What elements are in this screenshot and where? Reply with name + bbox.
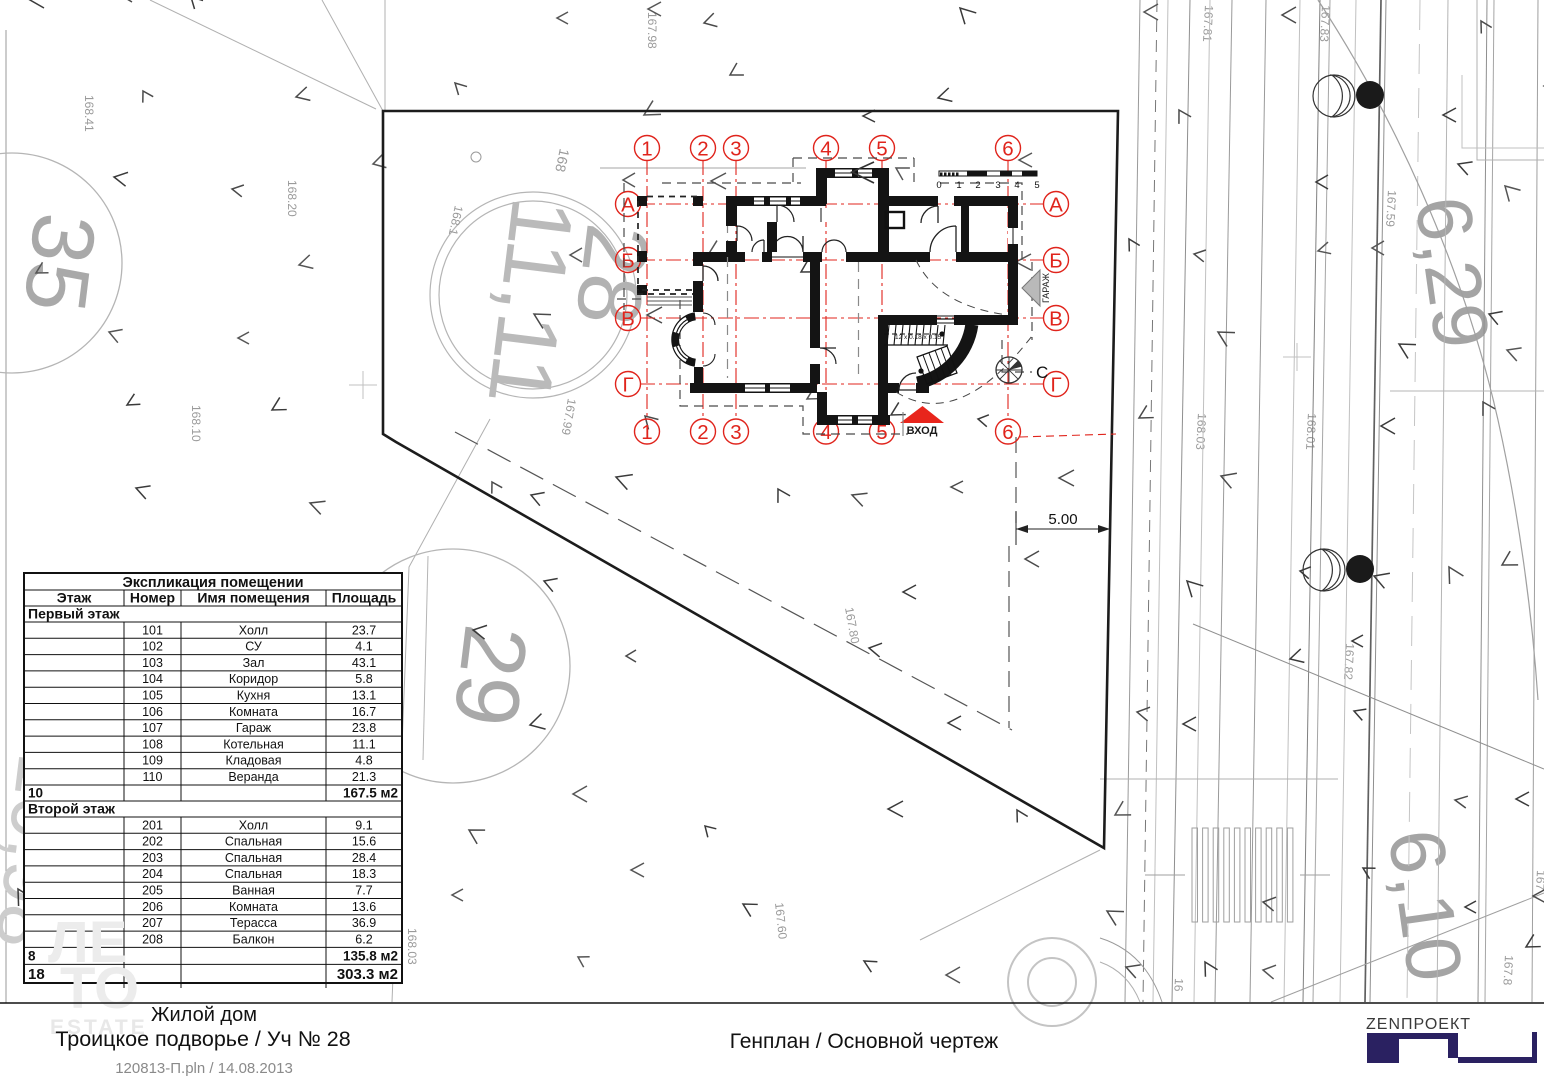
svg-text:6: 6: [1002, 421, 1013, 444]
svg-text:5: 5: [876, 137, 887, 160]
svg-text:207: 207: [142, 916, 163, 930]
svg-text:18: 18: [28, 966, 45, 983]
svg-text:36.9: 36.9: [352, 916, 376, 930]
svg-text:167.5 м2: 167.5 м2: [343, 786, 398, 801]
svg-text:Коридор: Коридор: [229, 672, 278, 686]
svg-text:108: 108: [142, 737, 163, 751]
svg-text:4.8: 4.8: [355, 754, 372, 768]
svg-text:204: 204: [142, 867, 163, 881]
svg-text:9.1: 9.1: [355, 818, 372, 832]
svg-text:Кладовая: Кладовая: [226, 754, 282, 768]
svg-text:107: 107: [142, 721, 163, 735]
svg-text:5.8: 5.8: [355, 672, 372, 686]
svg-text:Балкон: Балкон: [233, 932, 275, 946]
svg-text:Холл: Холл: [239, 818, 268, 832]
svg-text:168.20: 168.20: [285, 180, 299, 217]
svg-text:Зал: Зал: [243, 656, 265, 670]
svg-text:В: В: [621, 307, 635, 330]
svg-text:102: 102: [142, 640, 163, 654]
svg-text:ГАРАЖ: ГАРАЖ: [1041, 272, 1051, 303]
svg-text:Б: Б: [1049, 249, 1062, 272]
svg-text:135.8 м2: 135.8 м2: [343, 949, 398, 964]
svg-text:В: В: [1049, 307, 1063, 330]
svg-text:Спальная: Спальная: [225, 867, 282, 881]
svg-text:110: 110: [143, 770, 163, 784]
svg-text:2: 2: [697, 137, 708, 160]
svg-text:2: 2: [697, 421, 708, 444]
svg-text:Спальная: Спальная: [225, 851, 282, 865]
svg-text:203: 203: [142, 851, 163, 865]
svg-text:Имя помещения: Имя помещения: [197, 590, 309, 606]
svg-text:10: 10: [28, 786, 43, 801]
svg-text:35: 35: [5, 208, 115, 317]
svg-text:4: 4: [1014, 180, 1019, 191]
svg-text:21.3: 21.3: [352, 770, 376, 784]
svg-text:303.3 м2: 303.3 м2: [337, 966, 398, 983]
svg-text:43.1: 43.1: [352, 656, 376, 670]
svg-text:28.4: 28.4: [352, 851, 376, 865]
svg-text:29: 29: [434, 620, 545, 732]
svg-text:15.6: 15.6: [352, 835, 376, 849]
svg-text:16: 16: [1171, 978, 1186, 992]
svg-text:167.8: 167.8: [1500, 955, 1516, 986]
svg-text:Комната: Комната: [229, 900, 278, 914]
svg-text:168.03: 168.03: [405, 928, 419, 965]
svg-text:168.01: 168.01: [1303, 413, 1319, 451]
svg-text:Спальная: Спальная: [225, 835, 282, 849]
svg-text:105: 105: [142, 689, 163, 703]
svg-text:6: 6: [1002, 137, 1013, 160]
svg-text:7.7: 7.7: [355, 884, 372, 898]
svg-text:120813-П.pln / 14.08.2013: 120813-П.pln / 14.08.2013: [115, 1060, 293, 1077]
svg-text:168.41: 168.41: [82, 95, 96, 132]
svg-text:Холл: Холл: [239, 623, 268, 637]
svg-text:16.7: 16.7: [352, 705, 376, 719]
svg-text:Ванная: Ванная: [232, 884, 275, 898]
svg-text:5: 5: [1034, 180, 1039, 191]
svg-text:3: 3: [995, 180, 1000, 191]
svg-text:13.6: 13.6: [352, 900, 376, 914]
svg-text:ТО: ТО: [60, 956, 139, 1021]
svg-text:18.3: 18.3: [352, 867, 376, 881]
svg-text:Терасса: Терасса: [230, 916, 277, 930]
svg-text:3: 3: [730, 421, 741, 444]
svg-text:Б: Б: [621, 249, 634, 272]
svg-text:Г: Г: [622, 373, 633, 396]
svg-text:А: А: [621, 193, 635, 216]
svg-text:СУ: СУ: [245, 640, 262, 654]
svg-text:ВХОД: ВХОД: [907, 425, 938, 437]
svg-text:Второй этаж: Второй этаж: [28, 801, 116, 817]
svg-text:С: С: [1036, 363, 1048, 382]
svg-text:201: 201: [142, 818, 163, 832]
svg-text:3: 3: [730, 137, 741, 160]
svg-text:167.59: 167.59: [1383, 190, 1399, 228]
svg-text:206: 206: [142, 900, 163, 914]
svg-text:11.1: 11.1: [352, 737, 375, 751]
svg-text:208: 208: [142, 932, 163, 946]
svg-text:0: 0: [936, 180, 941, 191]
svg-text:205: 205: [142, 884, 163, 898]
svg-text:Жилой дом: Жилой дом: [151, 1004, 257, 1026]
svg-text:12 x 0.18 x 0.15: 12 x 0.18 x 0.15: [895, 334, 942, 341]
svg-text:5.00: 5.00: [1048, 511, 1077, 528]
svg-text:167.81: 167.81: [1200, 5, 1216, 43]
svg-text:Генплан / Основной чертеж: Генплан / Основной чертеж: [730, 1030, 998, 1053]
svg-text:Этаж: Этаж: [57, 590, 93, 606]
svg-text:23.7: 23.7: [352, 623, 376, 637]
svg-text:Первый этаж: Первый этаж: [28, 606, 121, 622]
svg-text:4: 4: [820, 137, 831, 160]
svg-text:167.82: 167.82: [1341, 643, 1357, 681]
svg-text:Номер: Номер: [130, 590, 175, 606]
svg-text:Веранда: Веранда: [228, 770, 278, 784]
svg-text:103: 103: [142, 656, 163, 670]
svg-text:13.1: 13.1: [352, 689, 376, 703]
svg-text:101: 101: [142, 623, 163, 637]
svg-text:Кухня: Кухня: [237, 689, 270, 703]
svg-text:104: 104: [142, 672, 163, 686]
svg-text:1: 1: [641, 137, 652, 160]
svg-text:ZENПРОЕКТ: ZENПРОЕКТ: [1366, 1016, 1471, 1033]
svg-text:168.10: 168.10: [189, 405, 203, 442]
svg-text:А: А: [1049, 193, 1063, 216]
svg-text:8: 8: [28, 949, 36, 964]
svg-text:4.1: 4.1: [355, 640, 372, 654]
svg-text:Комната: Комната: [229, 705, 278, 719]
svg-text:167: 167: [1533, 870, 1544, 891]
svg-text:1: 1: [641, 421, 652, 444]
svg-text:Г: Г: [1050, 373, 1061, 396]
svg-text:106: 106: [142, 705, 163, 719]
svg-text:Котельная: Котельная: [223, 737, 284, 751]
svg-text:109: 109: [142, 754, 163, 768]
svg-text:23.8: 23.8: [352, 721, 376, 735]
svg-text:Площадь: Площадь: [332, 590, 397, 606]
svg-text:1: 1: [956, 180, 961, 191]
svg-text:Троицкое подворье / Уч № 28: Троицкое подворье / Уч № 28: [55, 1027, 350, 1051]
svg-text:167.98: 167.98: [645, 12, 659, 49]
svg-text:2: 2: [975, 180, 980, 191]
svg-text:Гараж: Гараж: [236, 721, 272, 735]
svg-text:168.03: 168.03: [1193, 413, 1209, 451]
svg-text:6.2: 6.2: [355, 932, 372, 946]
svg-text:202: 202: [142, 835, 163, 849]
